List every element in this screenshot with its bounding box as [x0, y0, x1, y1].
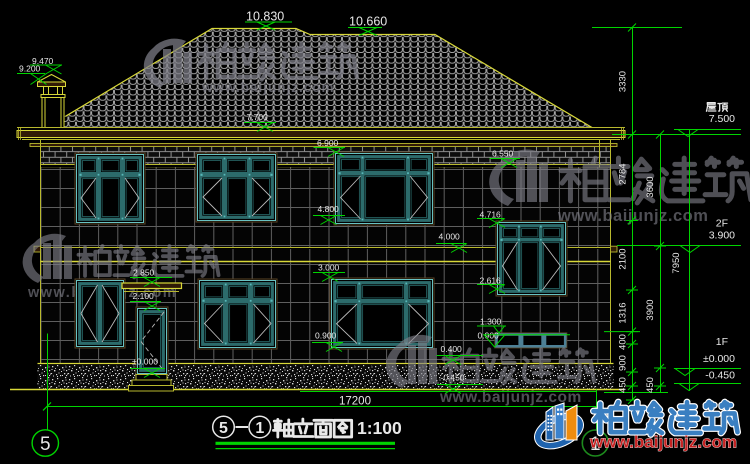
svg-text:6.900: 6.900 [317, 138, 339, 148]
svg-text:-0.450: -0.450 [441, 373, 465, 383]
svg-text:3600: 3600 [645, 176, 656, 197]
svg-text:2100: 2100 [618, 248, 629, 269]
svg-text:900: 900 [618, 355, 629, 371]
svg-text:400: 400 [618, 334, 629, 350]
svg-text:0.900: 0.900 [315, 331, 337, 341]
svg-text:5: 5 [219, 420, 228, 437]
svg-text:3.000: 3.000 [318, 263, 340, 273]
svg-text:1.300: 1.300 [480, 317, 502, 327]
svg-text:-0.450: -0.450 [705, 370, 735, 382]
svg-text:0.400: 0.400 [441, 344, 463, 354]
svg-text:9.200: 9.200 [19, 64, 41, 74]
svg-text:7950: 7950 [671, 252, 682, 273]
svg-text:450: 450 [645, 377, 656, 393]
svg-text:4.800: 4.800 [318, 204, 340, 214]
svg-text:1:100: 1:100 [357, 418, 402, 438]
svg-text:1: 1 [255, 420, 264, 437]
svg-text:17200: 17200 [339, 396, 371, 408]
svg-text:7.500: 7.500 [709, 113, 735, 125]
svg-text:6.550: 6.550 [492, 149, 514, 159]
svg-text:10.660: 10.660 [349, 15, 387, 29]
svg-text:2.850: 2.850 [133, 268, 155, 278]
svg-text:3.900: 3.900 [709, 230, 735, 242]
svg-text:1F: 1F [716, 336, 728, 348]
svg-text:5: 5 [40, 434, 51, 455]
svg-text:1316: 1316 [618, 302, 629, 323]
svg-text:3900: 3900 [645, 299, 656, 320]
svg-text:7.700: 7.700 [247, 112, 269, 122]
svg-text:±0.000: ±0.000 [132, 357, 158, 367]
svg-text:www.baijunjz.com: www.baijunjz.com [589, 433, 737, 452]
svg-text:2F: 2F [716, 218, 728, 230]
svg-text:4.000: 4.000 [439, 232, 461, 242]
svg-text:3330: 3330 [618, 71, 629, 92]
svg-text:10.830: 10.830 [246, 10, 284, 24]
svg-text:2.100: 2.100 [133, 291, 155, 301]
svg-text:450: 450 [618, 377, 629, 393]
svg-text:±0.000: ±0.000 [703, 353, 735, 365]
svg-text:www.baijunjz.com: www.baijunjz.com [201, 80, 335, 95]
svg-text:2784: 2784 [618, 163, 629, 184]
